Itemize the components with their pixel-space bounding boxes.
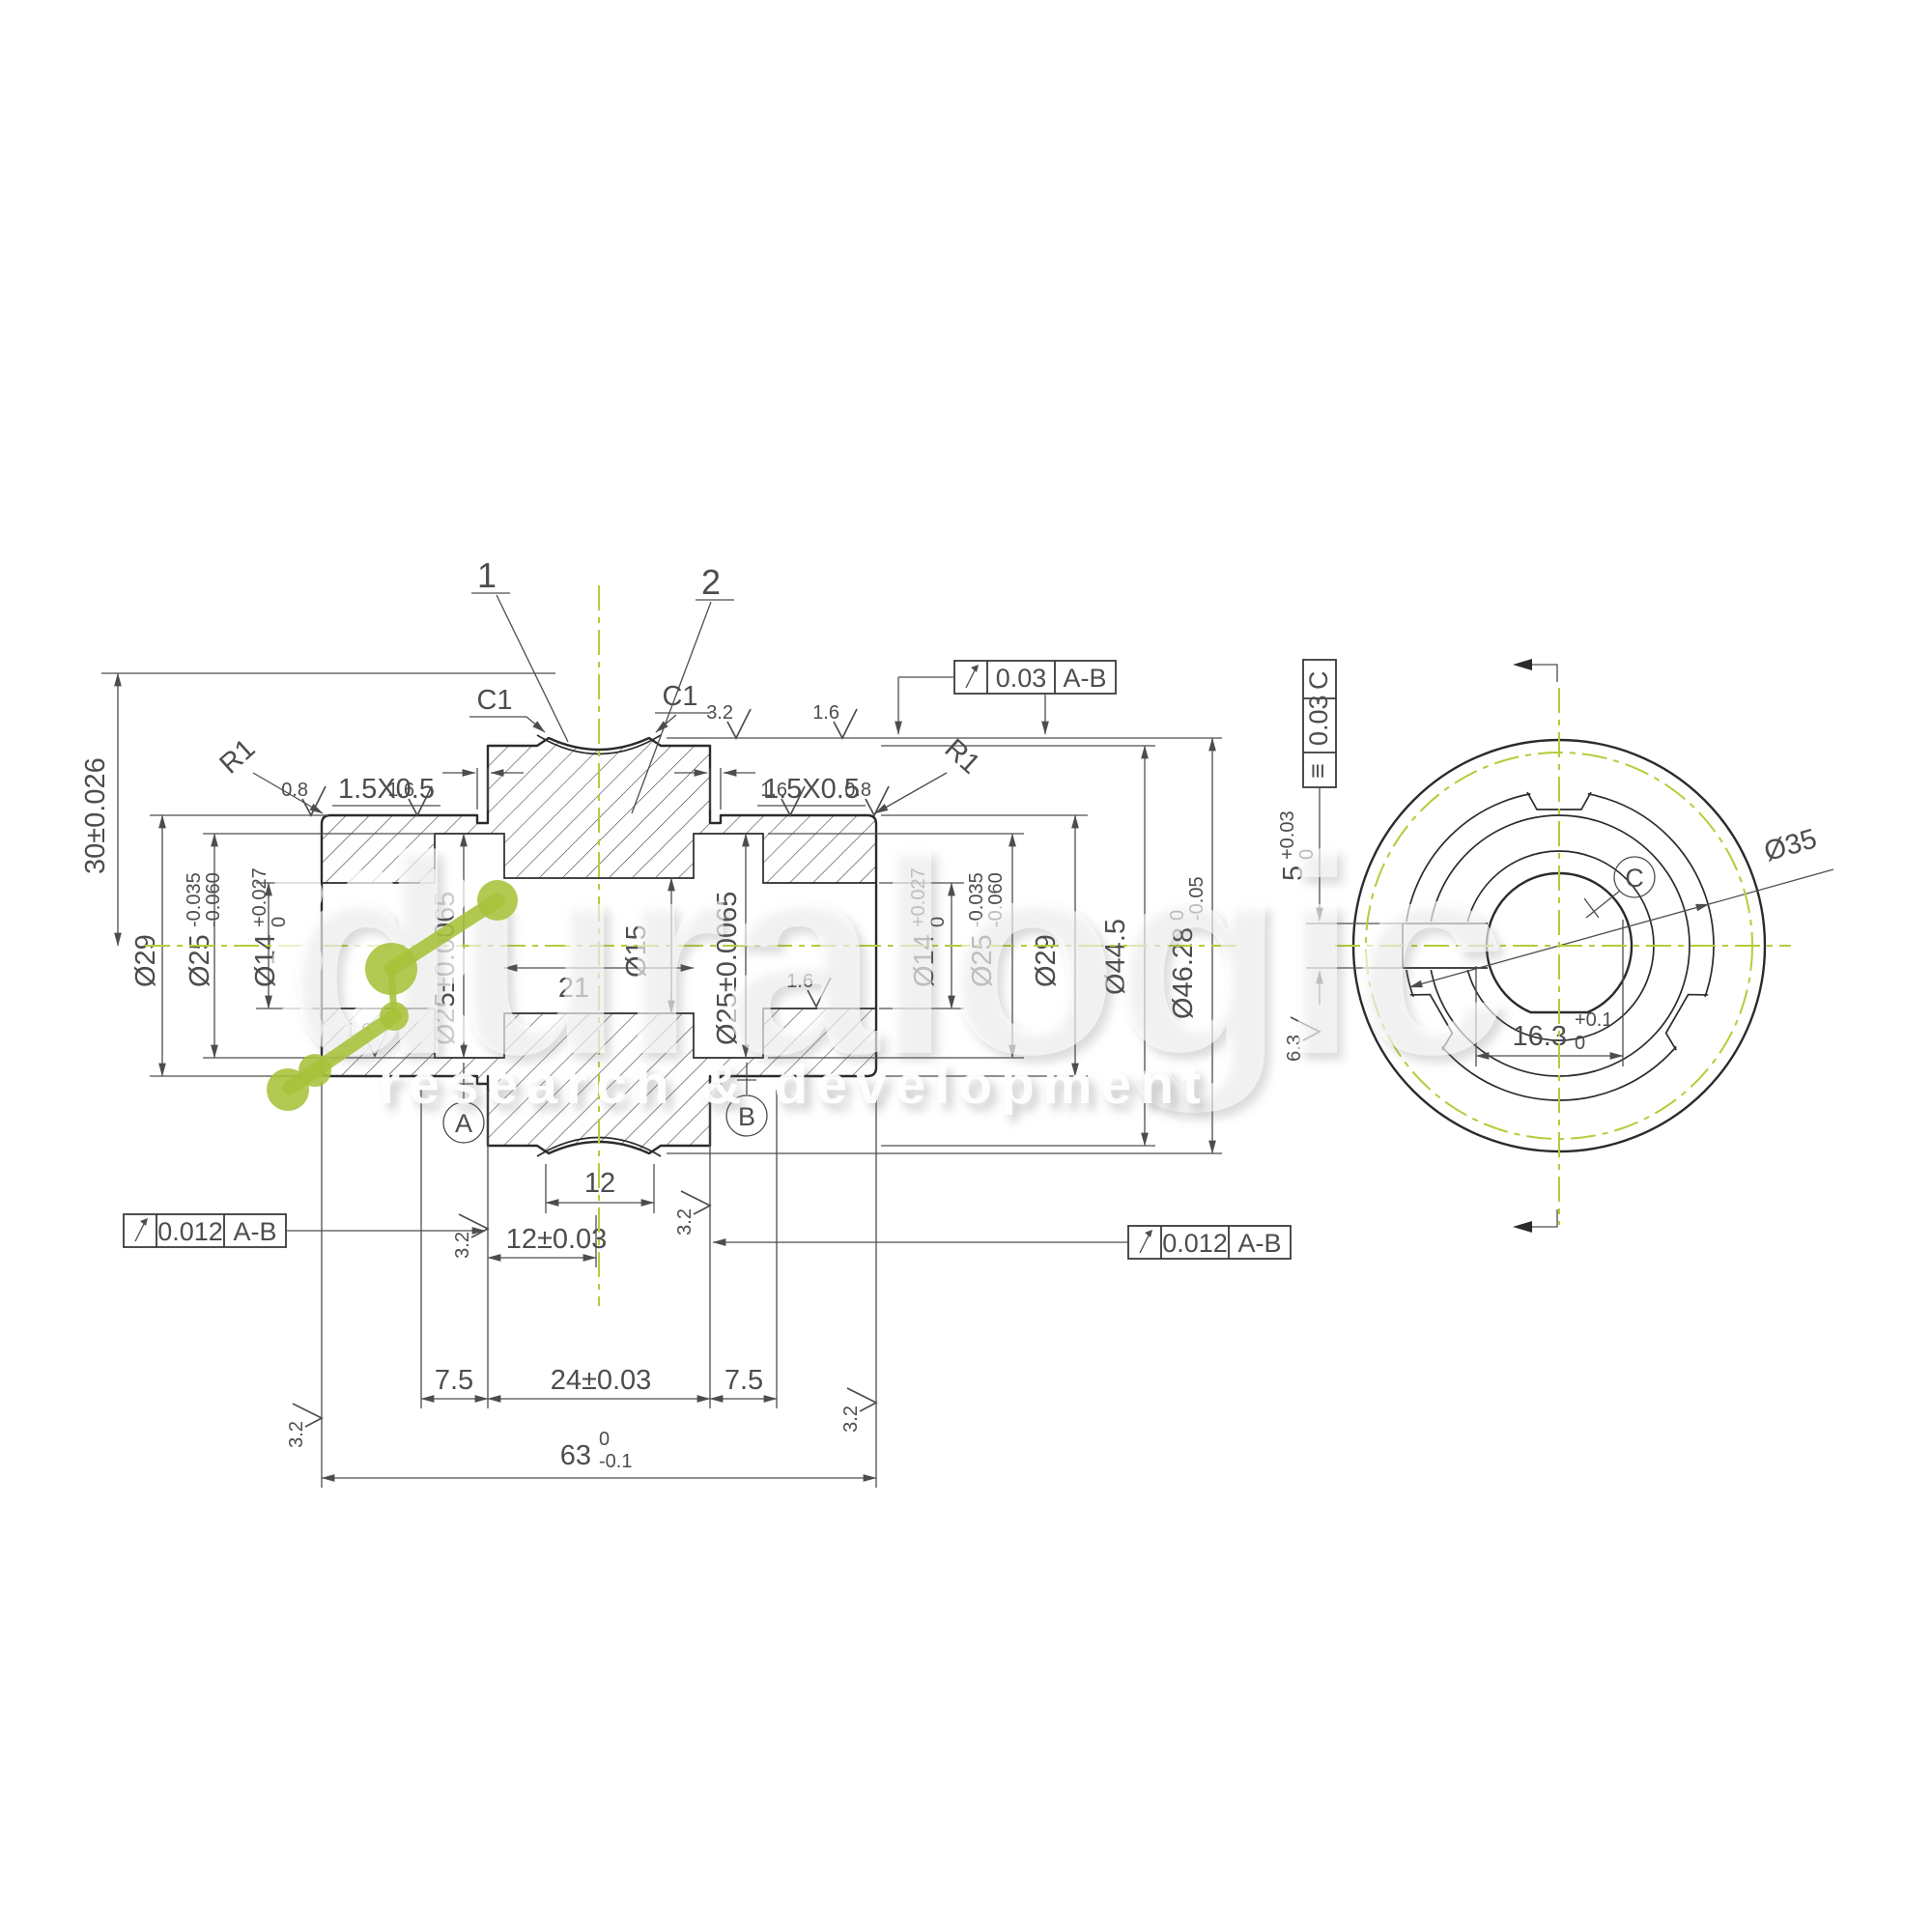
finish-32-bottom-right: 3.2 — [840, 1388, 876, 1433]
dim-75-left: 7.5 — [435, 1365, 473, 1396]
svg-text:0.012: 0.012 — [1162, 1229, 1228, 1258]
svg-text:30±0.026: 30±0.026 — [80, 757, 111, 874]
svg-text:A-B: A-B — [1237, 1229, 1281, 1258]
svg-text:1: 1 — [477, 555, 497, 595]
dim-30: 30±0.026 — [80, 757, 111, 874]
svg-text:C: C — [1304, 671, 1333, 691]
svg-text:C1: C1 — [662, 681, 697, 712]
dim-dia29-left: Ø29 — [130, 934, 161, 987]
finish-16-top: 1.6 — [812, 702, 857, 738]
finish-32-bottom-left: 3.2 — [286, 1404, 322, 1448]
svg-text:2: 2 — [701, 562, 721, 602]
svg-text:3.2: 3.2 — [840, 1406, 862, 1433]
finish-32-top: 3.2 — [706, 702, 751, 738]
dim-12-003: 12±0.03 — [506, 1224, 608, 1255]
finish-32-bottom-a: 3.2 — [452, 1214, 488, 1259]
svg-text:Ø29: Ø29 — [130, 934, 161, 987]
gdt-frame-bottom-left: 0.012 A-B — [124, 1214, 485, 1247]
svg-text:-0.035: -0.035 — [184, 872, 205, 927]
svg-text:-0.1: -0.1 — [599, 1451, 632, 1472]
dim-24-003: 24±0.03 — [551, 1365, 652, 1396]
dim-dia25-left: Ø25 -0.035 -0.060 — [184, 872, 224, 987]
dim-63: 63 0 -0.1 — [560, 1429, 633, 1472]
svg-text:A-B: A-B — [1063, 664, 1106, 693]
svg-text:1.6: 1.6 — [812, 702, 839, 724]
gdt-frame-top: 0.03 A-B — [898, 661, 1116, 734]
svg-text:C: C — [1625, 864, 1644, 893]
svg-text:≡: ≡ — [1303, 763, 1332, 779]
drawing-canvas: 30±0.026 Ø29 Ø25 -0.035 -0.060 Ø14 +0.02… — [0, 0, 1932, 1932]
section-arrow-top — [1513, 659, 1557, 682]
svg-text:C1: C1 — [476, 685, 512, 716]
svg-text:0.03: 0.03 — [996, 664, 1047, 693]
dim-75-right: 7.5 — [724, 1365, 763, 1396]
svg-text:3.2: 3.2 — [706, 702, 733, 724]
svg-text:0: 0 — [599, 1429, 610, 1450]
watermark-tagline: research & development — [379, 1054, 1209, 1116]
svg-text:-0.060: -0.060 — [203, 872, 224, 927]
finish-32-bottom-b: 3.2 — [674, 1191, 710, 1236]
svg-text:Ø35: Ø35 — [1761, 823, 1821, 867]
svg-text:63: 63 — [560, 1440, 591, 1471]
gdt-frame-bottom-right: 0.012 A-B — [713, 1226, 1291, 1259]
section-arrow-bottom — [1513, 1209, 1557, 1233]
svg-text:3.2: 3.2 — [674, 1208, 696, 1236]
chamfer-c1-right: C1 — [655, 681, 711, 732]
svg-text:+0.027: +0.027 — [249, 867, 270, 927]
svg-text:3.2: 3.2 — [286, 1421, 307, 1448]
svg-text:3.2: 3.2 — [452, 1232, 473, 1259]
svg-text:0.012: 0.012 — [157, 1217, 223, 1246]
svg-text:Ø25: Ø25 — [185, 934, 215, 987]
datum-c: C — [1584, 857, 1655, 918]
svg-text:0: 0 — [1575, 1033, 1585, 1054]
chamfer-c1-left: C1 — [469, 685, 545, 732]
technical-drawing-page: 30±0.026 Ø29 Ø25 -0.035 -0.060 Ø14 +0.02… — [0, 0, 1932, 1932]
svg-text:+0.1: +0.1 — [1575, 1009, 1612, 1031]
watermark: duralogic research & development — [267, 798, 1502, 1116]
svg-text:0.03: 0.03 — [1304, 695, 1333, 746]
svg-text:A-B: A-B — [233, 1217, 276, 1246]
